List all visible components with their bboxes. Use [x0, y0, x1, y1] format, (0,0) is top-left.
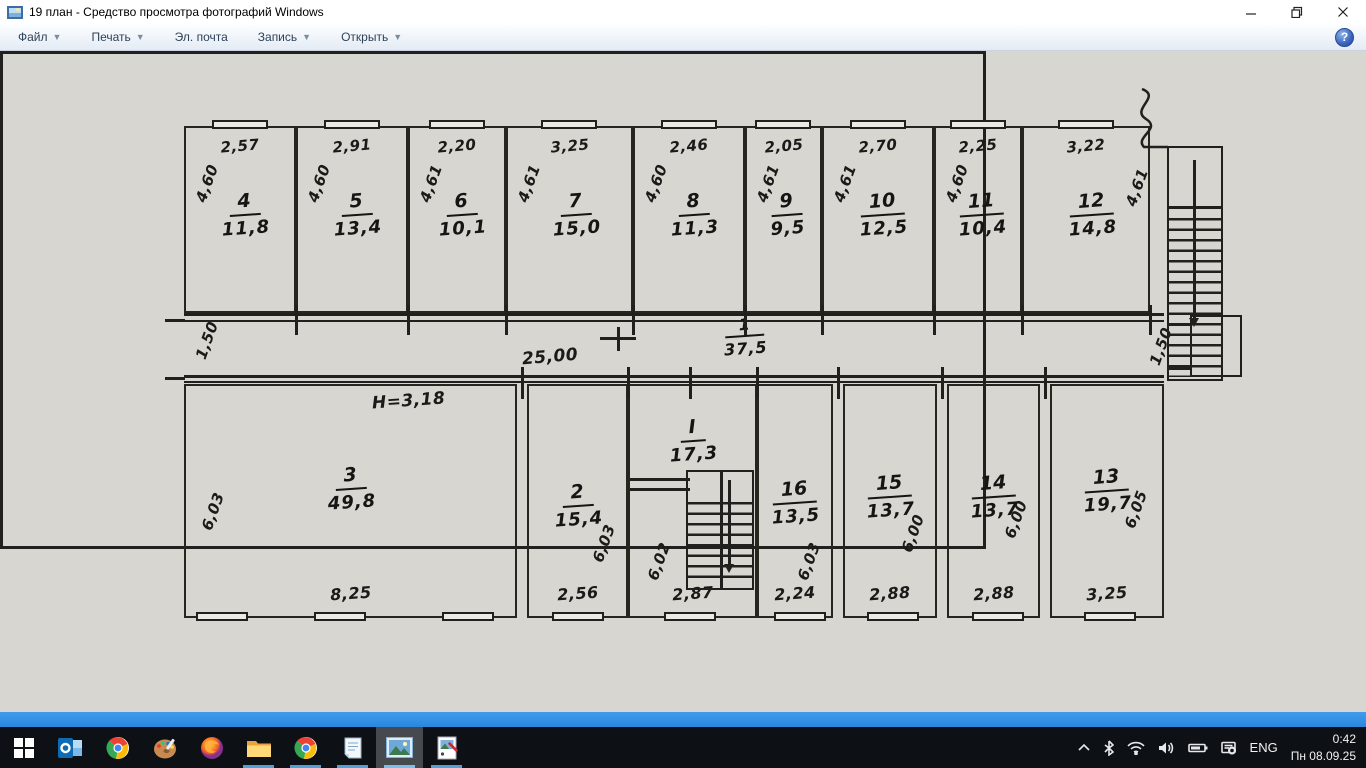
- room-10-label: 1012,5: [858, 188, 910, 240]
- room-13-width-dim: 3,25: [1086, 585, 1128, 604]
- taskbar-app-outlook[interactable]: [47, 727, 94, 768]
- image-editor-icon: [436, 736, 458, 760]
- chevron-down-icon: ▼: [302, 32, 311, 42]
- menu-item-4[interactable]: Запись▼: [250, 26, 319, 48]
- dimension-tick: [627, 367, 630, 399]
- window-mark-top: [212, 120, 268, 129]
- room-area: 14,8: [1068, 216, 1118, 240]
- photo-content-area: 2,574,60411,82,914,60513,42,204,61610,13…: [0, 51, 1366, 712]
- dimension-tick: [837, 367, 840, 399]
- room-15-width-dim: 2,88: [869, 585, 911, 604]
- room-14: 6,001413,72,88: [947, 384, 1040, 618]
- window-mark-bottom: [774, 612, 826, 621]
- window-mark-bottom: [1084, 612, 1136, 621]
- room-3-label: 349,8: [325, 462, 377, 514]
- room-number: I: [678, 415, 705, 443]
- room-area: 11,3: [670, 216, 720, 240]
- room-number: 6: [444, 189, 477, 217]
- room-area: 12,5: [859, 216, 909, 240]
- chrome-icon: [106, 736, 130, 760]
- photo-viewer-window: 19 план - Средство просмотра фотографий …: [0, 0, 1366, 768]
- room-number: 7: [558, 189, 591, 217]
- taskbar-app-paint[interactable]: [141, 727, 188, 768]
- room-number: 8: [677, 189, 710, 217]
- room-16-depth-dim: 6,03: [796, 541, 823, 583]
- taskbar-app-chrome[interactable]: [94, 727, 141, 768]
- photo-viewer-icon: [386, 737, 413, 758]
- dimension-tick: [744, 305, 747, 335]
- paint-icon: [153, 736, 177, 760]
- wifi-icon[interactable]: [1127, 741, 1145, 755]
- room-16-width-dim: 2,24: [774, 585, 816, 604]
- menu-item-label: Открыть: [341, 30, 388, 44]
- corridor-length-dim: 25,00: [521, 347, 579, 369]
- room-number: 9: [770, 189, 803, 217]
- outlook-icon: [58, 736, 83, 760]
- window-mark-top: [661, 120, 717, 129]
- room-5-depth-dim: 4,60: [306, 163, 333, 205]
- close-button[interactable]: [1320, 0, 1366, 24]
- taskbar-app-file-explorer[interactable]: [235, 727, 282, 768]
- chevron-up-icon[interactable]: [1077, 743, 1091, 753]
- dimension-tick: [933, 305, 936, 335]
- room-10-depth-dim: 4,61: [832, 163, 859, 205]
- menu-item-label: Эл. почта: [175, 30, 228, 44]
- menu-item-label: Запись: [258, 30, 297, 44]
- room-number: 14: [970, 471, 1016, 500]
- chevron-down-icon: ▼: [136, 32, 145, 42]
- help-button[interactable]: ?: [1335, 28, 1354, 47]
- room-9: 2,054,6199,5: [745, 126, 822, 313]
- taskbar-app-image-editor[interactable]: [423, 727, 470, 768]
- room-area: 49,8: [327, 490, 377, 514]
- restore-icon: [1291, 6, 1303, 18]
- window-mark-bottom: [196, 612, 248, 621]
- taskbar-app-firefox[interactable]: [188, 727, 235, 768]
- room-4-width-dim: 2,57: [220, 137, 260, 155]
- volume-icon[interactable]: [1158, 741, 1175, 755]
- system-tray: ENG 0:42 Пн 08.09.25: [1077, 727, 1366, 768]
- clock-date: Пн 08.09.25: [1291, 748, 1356, 764]
- room-I-depth-dim: 6,02: [646, 541, 673, 583]
- file-explorer-icon: [246, 737, 272, 759]
- room-area: 13,7: [866, 498, 916, 522]
- room-area: 19,7: [1083, 492, 1133, 516]
- taskbar: ENG 0:42 Пн 08.09.25: [0, 727, 1366, 768]
- taskbar-app-chrome-2[interactable]: [282, 727, 329, 768]
- room-14-label: 1413,7: [968, 470, 1020, 522]
- window-mark-bottom: [314, 612, 366, 621]
- room-16: 6,031613,52,24: [757, 384, 833, 618]
- stair-arrow-head: [724, 564, 734, 573]
- window-mark-bottom: [552, 612, 604, 621]
- start-button[interactable]: [0, 727, 47, 768]
- stair-break-line: [1128, 87, 1174, 154]
- room-8-depth-dim: 4,60: [643, 163, 670, 205]
- room-number: 5: [340, 189, 373, 217]
- menu-item-label: Файл: [18, 30, 48, 44]
- battery-icon[interactable]: [1188, 742, 1208, 754]
- dimension-tick: [505, 305, 508, 335]
- left-wall-tick: [165, 377, 185, 380]
- room-number: 13: [1083, 465, 1129, 494]
- stair-shaft: [686, 470, 754, 590]
- menu-item-5[interactable]: Открыть▼: [333, 26, 410, 48]
- room-4-label: 411,8: [220, 188, 272, 240]
- exit-porch: [1190, 315, 1242, 377]
- dimension-tick: [1149, 305, 1152, 335]
- clock[interactable]: 0:42 Пн 08.09.25: [1291, 731, 1356, 763]
- room-area: 15,0: [552, 216, 602, 240]
- window-mark-bottom: [442, 612, 494, 621]
- corridor-wall: [184, 381, 1164, 383]
- photo-viewer-icon: [7, 6, 23, 19]
- room-number: 12: [1068, 189, 1114, 218]
- menu-item-3[interactable]: Эл. почта: [167, 26, 236, 48]
- room-area: 15,4: [554, 507, 604, 531]
- room-number: 3: [333, 463, 366, 491]
- room-6: 2,204,61610,1: [408, 126, 506, 313]
- left-wall-tick: [165, 319, 185, 322]
- room-area: 11,8: [221, 216, 271, 240]
- corridor-cross: [617, 327, 620, 351]
- room-3-depth-dim: 6,03: [200, 491, 227, 533]
- window-mark-bottom: [972, 612, 1024, 621]
- room-12: 3,224,611214,8: [1022, 126, 1150, 313]
- room-6-width-dim: 2,20: [437, 137, 477, 155]
- firefox-icon: [200, 736, 224, 760]
- room-2-label: 215,4: [552, 479, 604, 531]
- room-11: 2,254,601110,4: [934, 126, 1022, 313]
- restore-button[interactable]: [1274, 0, 1320, 24]
- corridor-wall: [184, 320, 1164, 322]
- room-3-width-dim: 8,25: [329, 585, 371, 604]
- window-mark-top: [541, 120, 597, 129]
- room-area: 17,3: [669, 442, 719, 466]
- room-number: 2: [560, 480, 593, 508]
- corridor-wall: [184, 313, 1164, 316]
- notepad-icon: [342, 736, 364, 760]
- stair-arrow: [728, 480, 731, 566]
- room-3: 6,03349,88,25: [184, 384, 517, 618]
- room-I: 6,02I17,32,87: [628, 384, 757, 618]
- room-8: 2,464,60811,3: [633, 126, 745, 313]
- room-16-label: 1613,5: [769, 476, 821, 528]
- break-line: [1128, 87, 1174, 149]
- minimize-button[interactable]: [1228, 0, 1274, 24]
- room-5: 2,914,60513,4: [296, 126, 408, 313]
- window-bottom-strip: [0, 712, 1366, 727]
- room-I-label: I17,3: [667, 414, 719, 466]
- room-10: 2,704,611012,5: [822, 126, 934, 313]
- room-2-width-dim: 2,56: [556, 585, 598, 604]
- room-4-depth-dim: 4,60: [194, 163, 221, 205]
- room-8-label: 811,3: [669, 188, 721, 240]
- external-stair-arrow: [1193, 160, 1196, 320]
- room-number: 16: [771, 477, 817, 506]
- dimension-tick: [521, 367, 524, 399]
- bluetooth-icon[interactable]: [1104, 740, 1114, 756]
- room-2: 6,03215,42,56: [527, 384, 628, 618]
- dimension-tick: [756, 367, 759, 399]
- room-7-width-dim: 3,25: [549, 137, 589, 155]
- porch-link: [1167, 367, 1190, 370]
- menu-item-1[interactable]: Файл▼: [10, 26, 69, 48]
- dimension-tick: [821, 305, 824, 335]
- room-area: 10,4: [958, 216, 1008, 240]
- dimension-tick: [1021, 305, 1024, 335]
- start-icon: [12, 736, 36, 760]
- window-mark-top: [755, 120, 811, 129]
- room-area: 13,5: [771, 504, 821, 528]
- stair-landing-line: [630, 488, 690, 491]
- room-4: 2,574,60411,8: [184, 126, 296, 313]
- window-mark-top: [324, 120, 380, 129]
- room-area: 9,5: [770, 217, 806, 240]
- window-mark-bottom: [867, 612, 919, 621]
- title-bar: 19 план - Средство просмотра фотографий …: [0, 0, 1366, 24]
- floor-plan-image: 2,574,60411,82,914,60513,42,204,61610,13…: [0, 51, 1366, 712]
- room-number: 15: [866, 471, 912, 500]
- room-12-depth-dim: 4,61: [1124, 167, 1151, 209]
- room-10-width-dim: 2,70: [858, 137, 898, 155]
- room-number: 11: [958, 189, 1004, 218]
- room-12-width-dim: 3,22: [1066, 137, 1106, 155]
- window-mark-bottom: [664, 612, 716, 621]
- window-mark-top: [1058, 120, 1114, 129]
- dimension-tick: [1044, 367, 1047, 399]
- room-number: 4: [228, 189, 261, 217]
- notifications-icon[interactable]: [1221, 741, 1237, 755]
- room-15-label: 1513,7: [864, 470, 916, 522]
- dimension-tick: [941, 367, 944, 399]
- room-area: 10,1: [438, 216, 488, 240]
- room-12-label: 1214,8: [1066, 188, 1118, 240]
- chrome-icon: [294, 736, 318, 760]
- menu-item-2[interactable]: Печать▼: [83, 26, 152, 48]
- room-11-width-dim: 2,25: [958, 137, 998, 155]
- menu-bar: Файл▼Печать▼Эл. почтаЗапись▼Открыть▼ ?: [0, 24, 1366, 51]
- room-9-width-dim: 2,05: [763, 137, 803, 155]
- room-area: 37,5: [723, 337, 768, 359]
- room-area: 13,7: [970, 498, 1020, 522]
- room-6-label: 610,1: [436, 188, 488, 240]
- room-13: 6,051319,73,25: [1050, 384, 1164, 618]
- taskbar-app-photo-viewer[interactable]: [376, 727, 423, 768]
- dimension-tick: [407, 305, 410, 335]
- corridor-wall: [184, 375, 1164, 378]
- room-8-width-dim: 2,46: [669, 137, 709, 155]
- window-mark-top: [429, 120, 485, 129]
- chevron-down-icon: ▼: [393, 32, 402, 42]
- close-icon: [1337, 6, 1349, 18]
- window-mark-top: [950, 120, 1006, 129]
- room-number: 10: [860, 189, 906, 218]
- room-5-label: 513,4: [332, 188, 384, 240]
- room-13-label: 1319,7: [1081, 464, 1133, 516]
- room-area: 13,4: [333, 216, 383, 240]
- stair-landing-line: [630, 478, 690, 481]
- room-7: 3,254,61715,0: [506, 126, 633, 313]
- dimension-tick: [689, 367, 692, 399]
- porch-link: [1167, 323, 1190, 326]
- minimize-icon: [1245, 6, 1257, 18]
- room-15: 6,001513,72,88: [843, 384, 937, 618]
- room-14-width-dim: 2,88: [972, 585, 1014, 604]
- clock-time: 0:42: [1291, 731, 1356, 747]
- room-7-depth-dim: 4,61: [516, 163, 543, 205]
- room-5-width-dim: 2,91: [332, 137, 372, 155]
- dimension-tick: [295, 305, 298, 335]
- language-indicator[interactable]: ENG: [1250, 740, 1278, 755]
- chevron-down-icon: ▼: [53, 32, 62, 42]
- stair-divider: [720, 472, 723, 588]
- room-11-label: 1110,4: [956, 188, 1008, 240]
- window-mark-top: [850, 120, 906, 129]
- window-title: 19 план - Средство просмотра фотографий …: [29, 5, 324, 19]
- room-7-label: 715,0: [550, 188, 602, 240]
- taskbar-app-notepad[interactable]: [329, 727, 376, 768]
- room-9-label: 99,5: [768, 189, 806, 240]
- menu-item-label: Печать: [91, 30, 130, 44]
- dimension-tick: [632, 305, 635, 335]
